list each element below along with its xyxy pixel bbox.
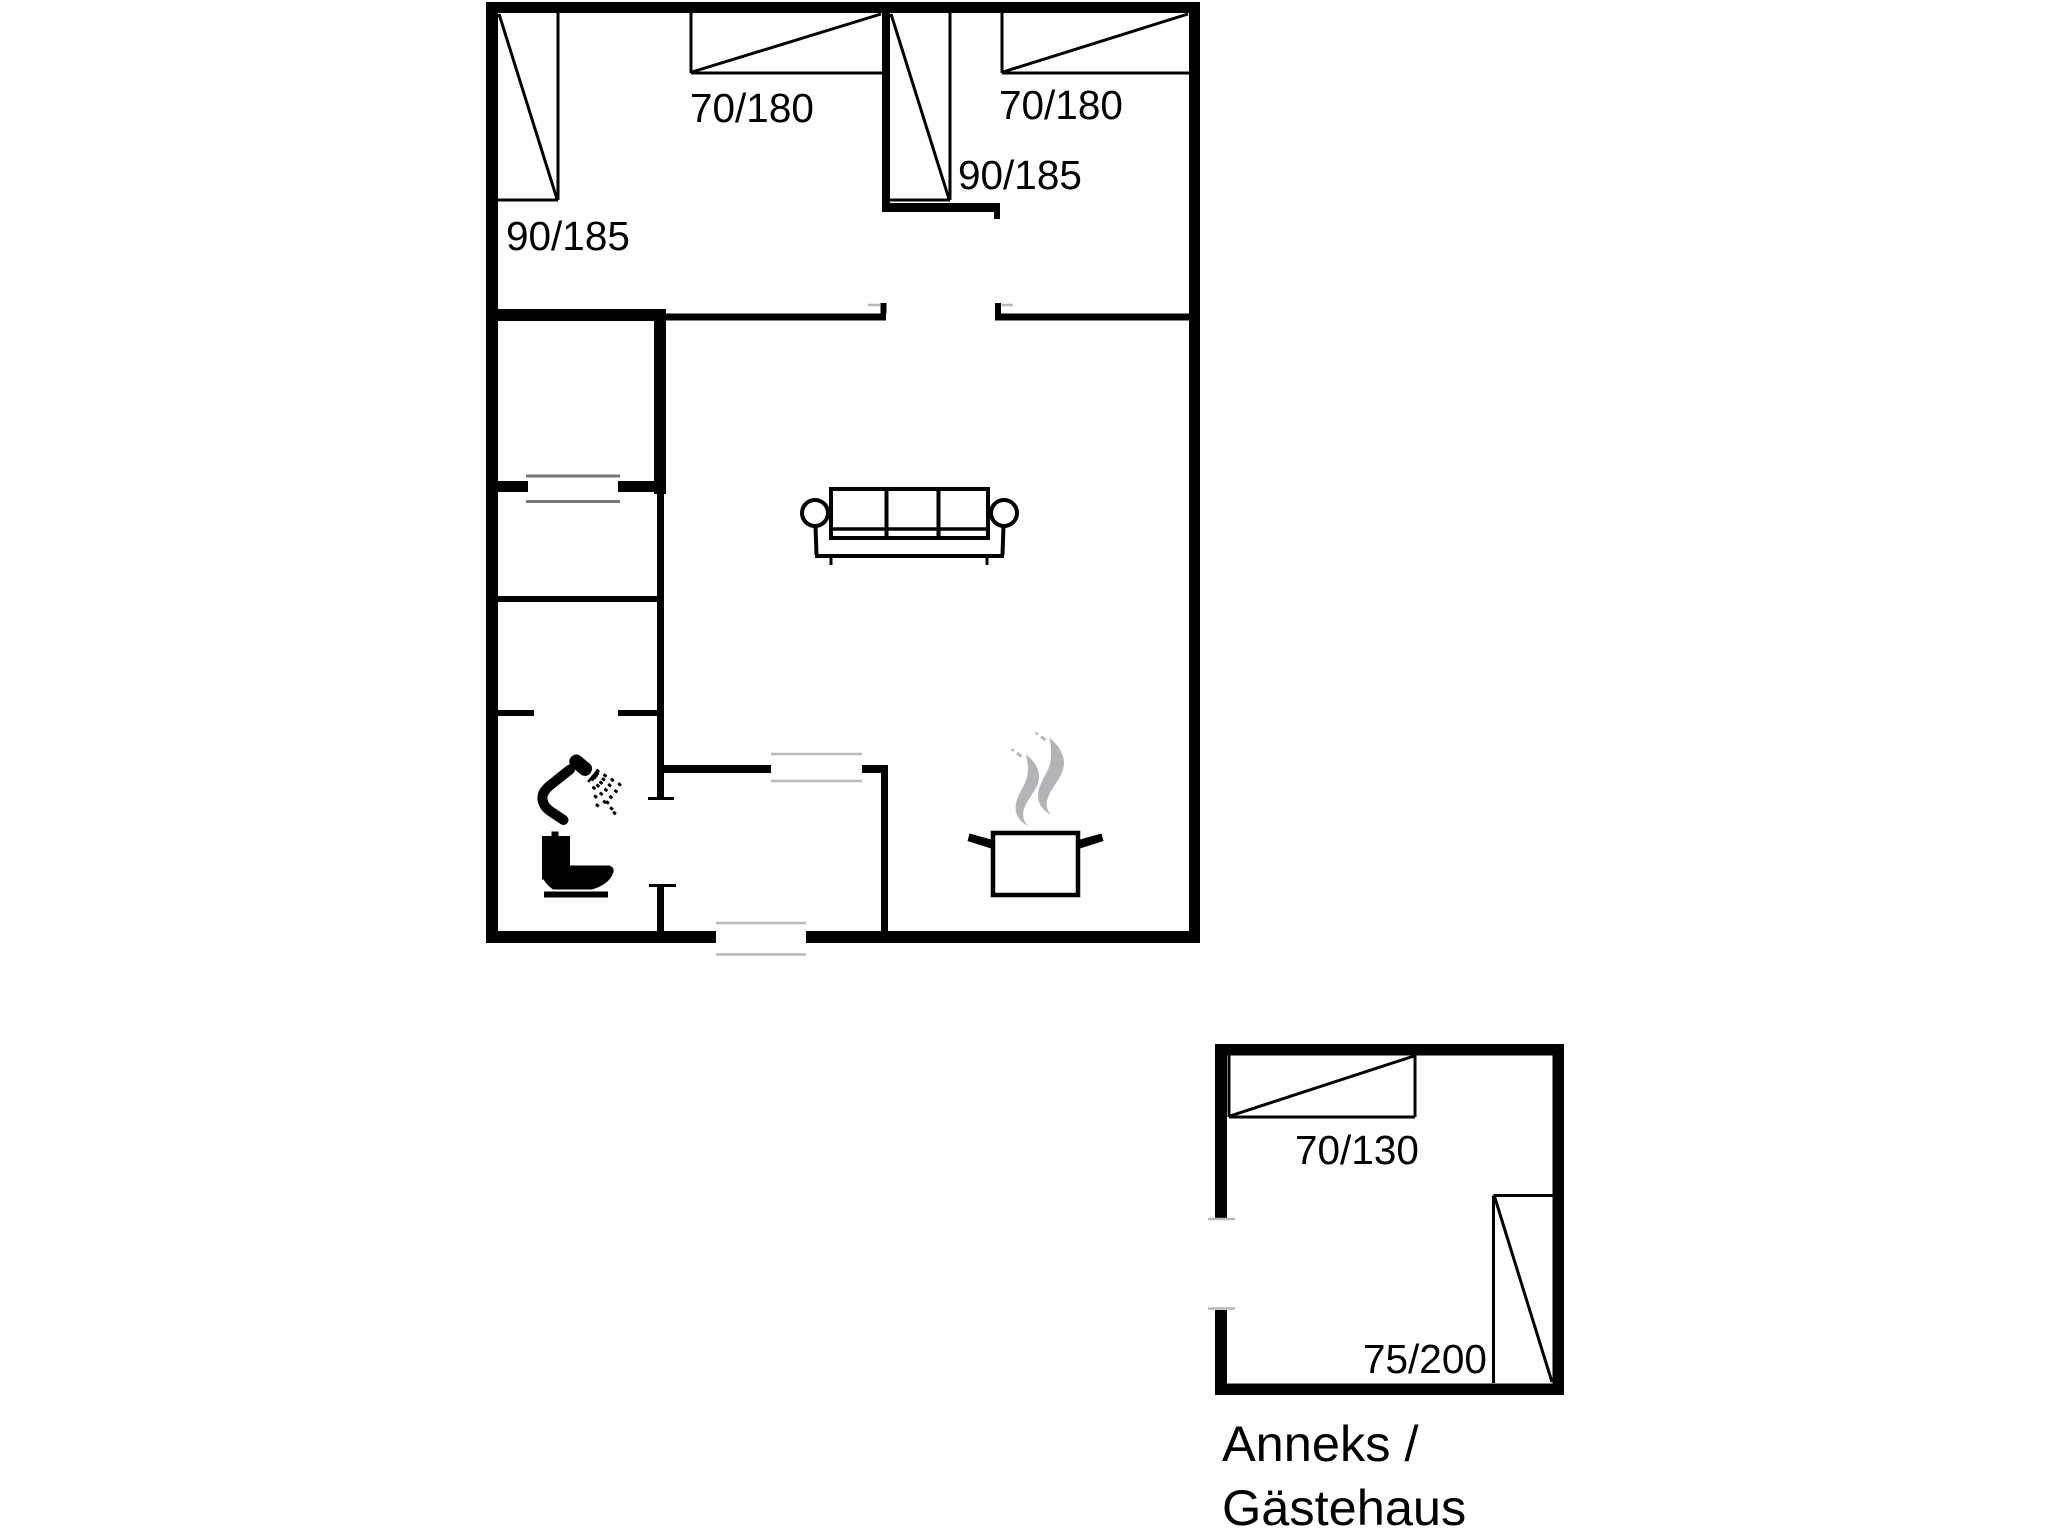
svg-text:90/185: 90/185 xyxy=(506,213,630,259)
svg-text:Gästehaus: Gästehaus xyxy=(1222,1479,1466,1536)
svg-text:70/130: 70/130 xyxy=(1295,1127,1419,1173)
svg-text:70/180: 70/180 xyxy=(690,85,814,131)
svg-text:90/185: 90/185 xyxy=(958,152,1082,198)
svg-text:Anneks /: Anneks / xyxy=(1222,1415,1419,1472)
svg-text:70/180: 70/180 xyxy=(999,82,1123,128)
svg-text:75/200: 75/200 xyxy=(1363,1336,1487,1382)
